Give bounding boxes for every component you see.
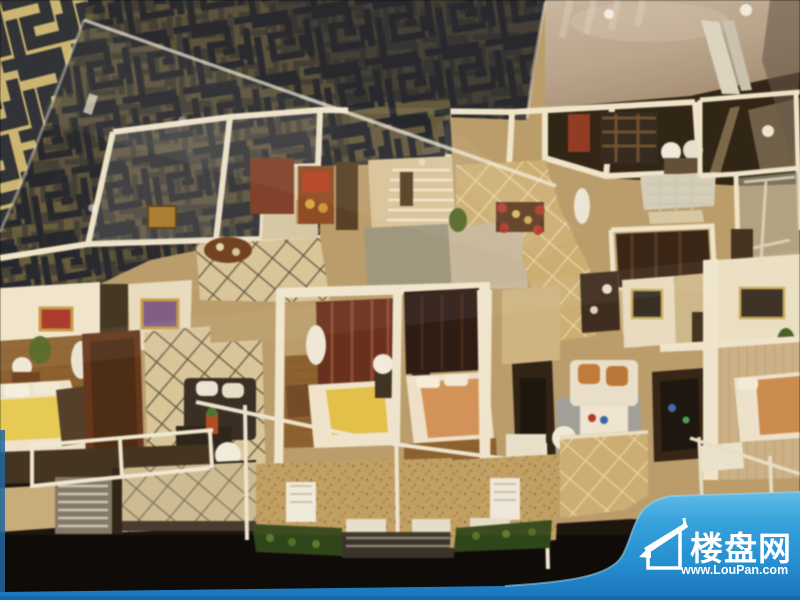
svg-text:www.LouPan.com: www.LouPan.com <box>680 563 788 577</box>
svg-text:楼盘网: 楼盘网 <box>690 530 792 567</box>
